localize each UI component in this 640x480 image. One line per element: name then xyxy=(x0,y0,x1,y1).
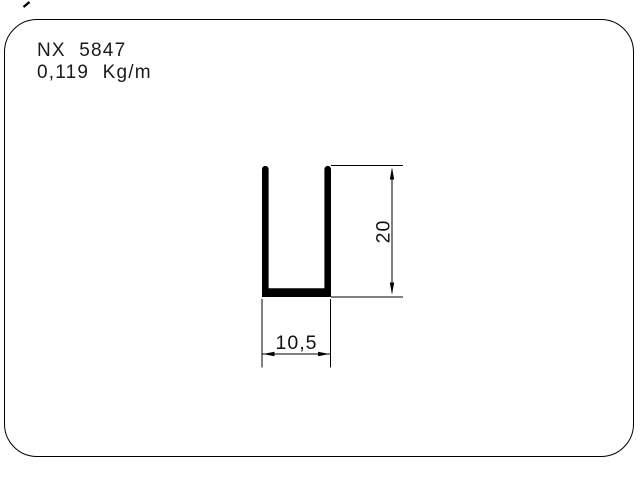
corner-tick-mark xyxy=(24,2,30,7)
height-dimension-value: 20 xyxy=(373,220,395,244)
width-dimension-value: 10,5 xyxy=(276,332,318,354)
width-dimension: 10,5 xyxy=(262,299,331,368)
height-dimension: 20 xyxy=(331,166,403,298)
profile-drawing: 20 10,5 xyxy=(0,0,640,480)
dimension-arrow-right xyxy=(318,352,330,356)
dimension-arrow-left xyxy=(263,352,275,356)
dimension-arrow-down xyxy=(390,283,394,295)
dimension-arrow-up xyxy=(390,168,394,180)
drawing-page: NX 5847 0,119 Kg/m 20 10,5 xyxy=(0,0,640,480)
u-profile-shape xyxy=(262,169,331,293)
